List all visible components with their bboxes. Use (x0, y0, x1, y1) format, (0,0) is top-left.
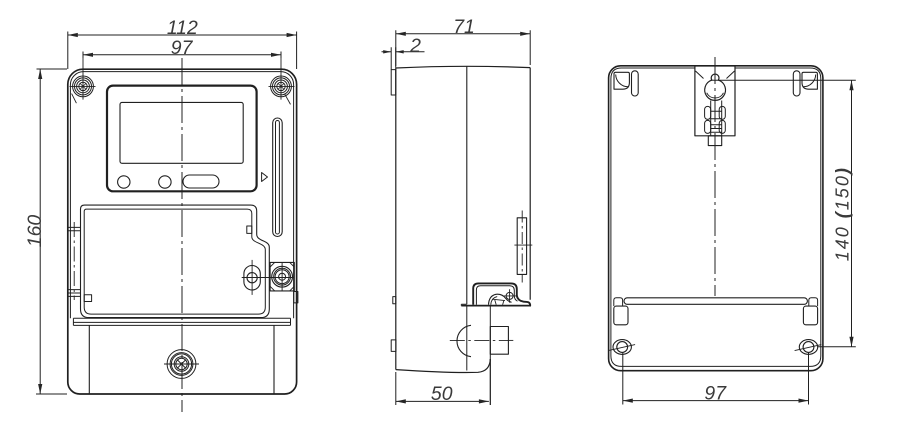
svg-text:50: 50 (431, 383, 453, 405)
svg-text:97: 97 (704, 383, 727, 405)
svg-text:160: 160 (24, 215, 46, 248)
svg-text:71: 71 (453, 16, 475, 38)
svg-text:112: 112 (167, 17, 198, 39)
svg-text:97: 97 (171, 37, 194, 59)
svg-text:2: 2 (409, 35, 421, 57)
svg-text:140 (150): 140 (150) (833, 166, 853, 261)
